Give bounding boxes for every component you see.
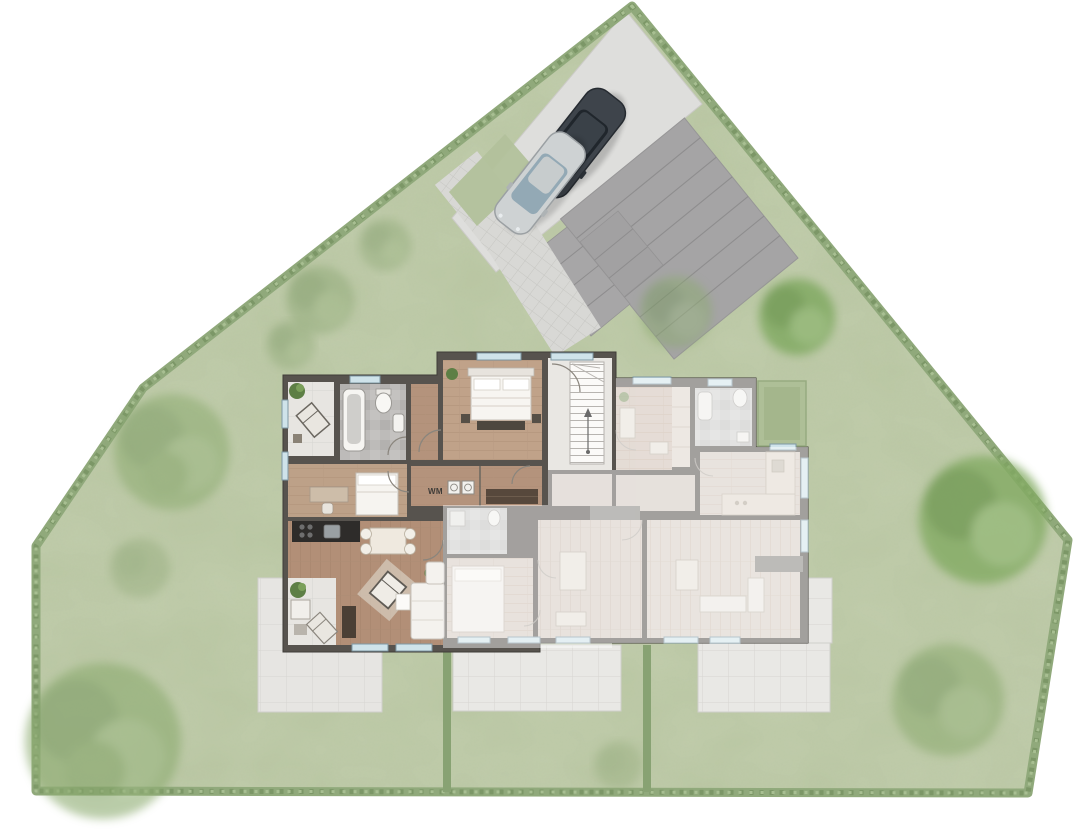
bathtub-basin [347,394,361,444]
bathroom [340,384,406,460]
tree-bottom-left [25,663,181,819]
pillow [474,379,500,390]
dryer-icon [462,481,474,494]
stairwell [548,358,612,470]
window [350,376,380,383]
terrace-door [352,644,388,651]
tv-sideboard [342,606,356,638]
tree-by-path [640,276,712,348]
site-plan-rendering: WM [0,0,1074,830]
toilet [376,393,392,413]
plant-icon [446,368,458,380]
nightstand [532,414,541,423]
armchair [291,600,310,619]
washing-machine-label: WM [428,487,443,496]
desk-chair [322,503,333,514]
site-plan-screenshot: WM [0,0,1074,830]
tree-left [114,394,230,510]
terrace-middle [453,645,621,711]
chair [405,544,416,555]
nightstand [461,414,470,423]
tree-by-carport [759,279,835,355]
chair [405,529,416,540]
shrub-bottom-middle [594,741,642,789]
window [282,400,288,428]
window [282,452,288,480]
chair [361,529,372,540]
pillow [503,379,529,390]
kitchen-sink [324,525,340,538]
ottoman [294,624,307,635]
loggia-bottom-left [288,578,337,645]
building: WM [282,352,808,652]
loggia-top-left [288,382,334,456]
bed-headboard [468,368,534,376]
shrub-left [110,538,170,598]
shrub-upper-left-2 [359,219,411,271]
corridor: WM [411,466,542,506]
entrance-door-sill [551,353,593,360]
shrub-upper-left-3 [266,321,314,369]
washbasin [393,414,404,432]
window [477,353,521,360]
terrace-door [396,644,432,651]
green-patch [758,381,806,446]
bedroom-main [443,360,542,460]
loggia-side-table [293,434,302,443]
chair [361,544,372,555]
side-table [396,594,410,610]
tree-bottom-right [892,644,1004,756]
kids-room [288,464,407,517]
dining-table [370,528,406,554]
bed-bench [477,421,525,430]
tree-right [919,456,1047,584]
washing-machine-icon [448,481,460,494]
desk [310,487,348,502]
